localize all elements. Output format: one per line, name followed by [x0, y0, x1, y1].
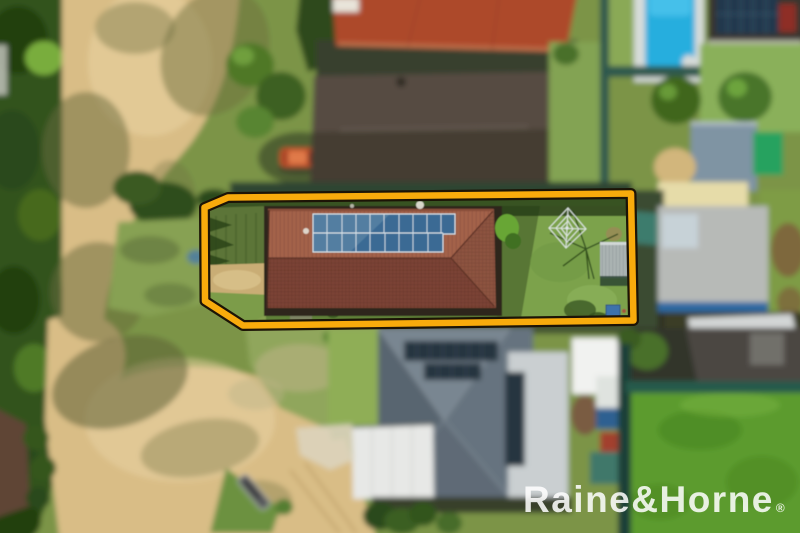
pool-house-solar-array [716, 0, 778, 34]
cream-roof [658, 182, 748, 210]
sand-patch [654, 148, 696, 186]
toy [622, 309, 626, 313]
hedge [26, 487, 50, 509]
shadow [144, 283, 196, 307]
green-tarp [753, 132, 783, 175]
side-lawn [328, 330, 380, 426]
clothesline-pole [565, 226, 568, 229]
pergola-roof [352, 424, 434, 499]
tree [18, 189, 62, 241]
roof-light-patch [662, 214, 698, 248]
watermark-text: Raine&Horne [523, 479, 774, 520]
blue-roof-edge [658, 302, 768, 313]
registered-mark-icon: ® [776, 501, 785, 515]
roof-light-patch [750, 333, 784, 365]
solar-strip [505, 372, 525, 466]
dirt-highlight [213, 270, 261, 290]
aerial-photo-canvas [0, 0, 800, 533]
roof-vent [350, 204, 354, 208]
hedge [436, 512, 462, 533]
roof-lower-slope [310, 129, 553, 190]
overhanging-shrub [505, 233, 521, 249]
roof-vent [303, 228, 309, 234]
neighbor-roof-sliver [0, 45, 7, 95]
side-lawn [549, 42, 603, 194]
gutter-line [708, 40, 800, 44]
hedge [30, 456, 56, 480]
tree [718, 72, 772, 122]
dry-patch [228, 378, 284, 410]
watermark: Raine&Horne® [523, 481, 785, 527]
roof-vent [416, 201, 424, 209]
aerial-photo: Raine&Horne® [0, 0, 800, 533]
fence [626, 381, 800, 393]
brown-object [571, 395, 599, 435]
shadow [120, 236, 180, 264]
lawn-highlight [680, 393, 780, 417]
bush [275, 499, 293, 515]
tree-highlight [727, 79, 747, 97]
roof-extension [508, 328, 533, 354]
fence [609, 66, 713, 77]
roof-vent [396, 77, 406, 87]
subject-solar-array [313, 214, 455, 252]
shed-ridge [691, 122, 757, 125]
red-roof-piece [779, 4, 796, 32]
shed-roof-corrugation [691, 122, 757, 191]
hedge [409, 502, 437, 526]
tree [113, 171, 161, 205]
fence [600, 0, 609, 202]
subject-house [264, 201, 502, 316]
lawn-mottle [530, 242, 590, 282]
skylight [333, 0, 359, 12]
subject-property [201, 191, 636, 328]
tree-highlight [659, 84, 677, 100]
pool-highlight [649, 0, 691, 16]
tree [25, 41, 63, 75]
tree [651, 76, 701, 124]
hedge [23, 426, 49, 450]
bush [553, 43, 579, 65]
